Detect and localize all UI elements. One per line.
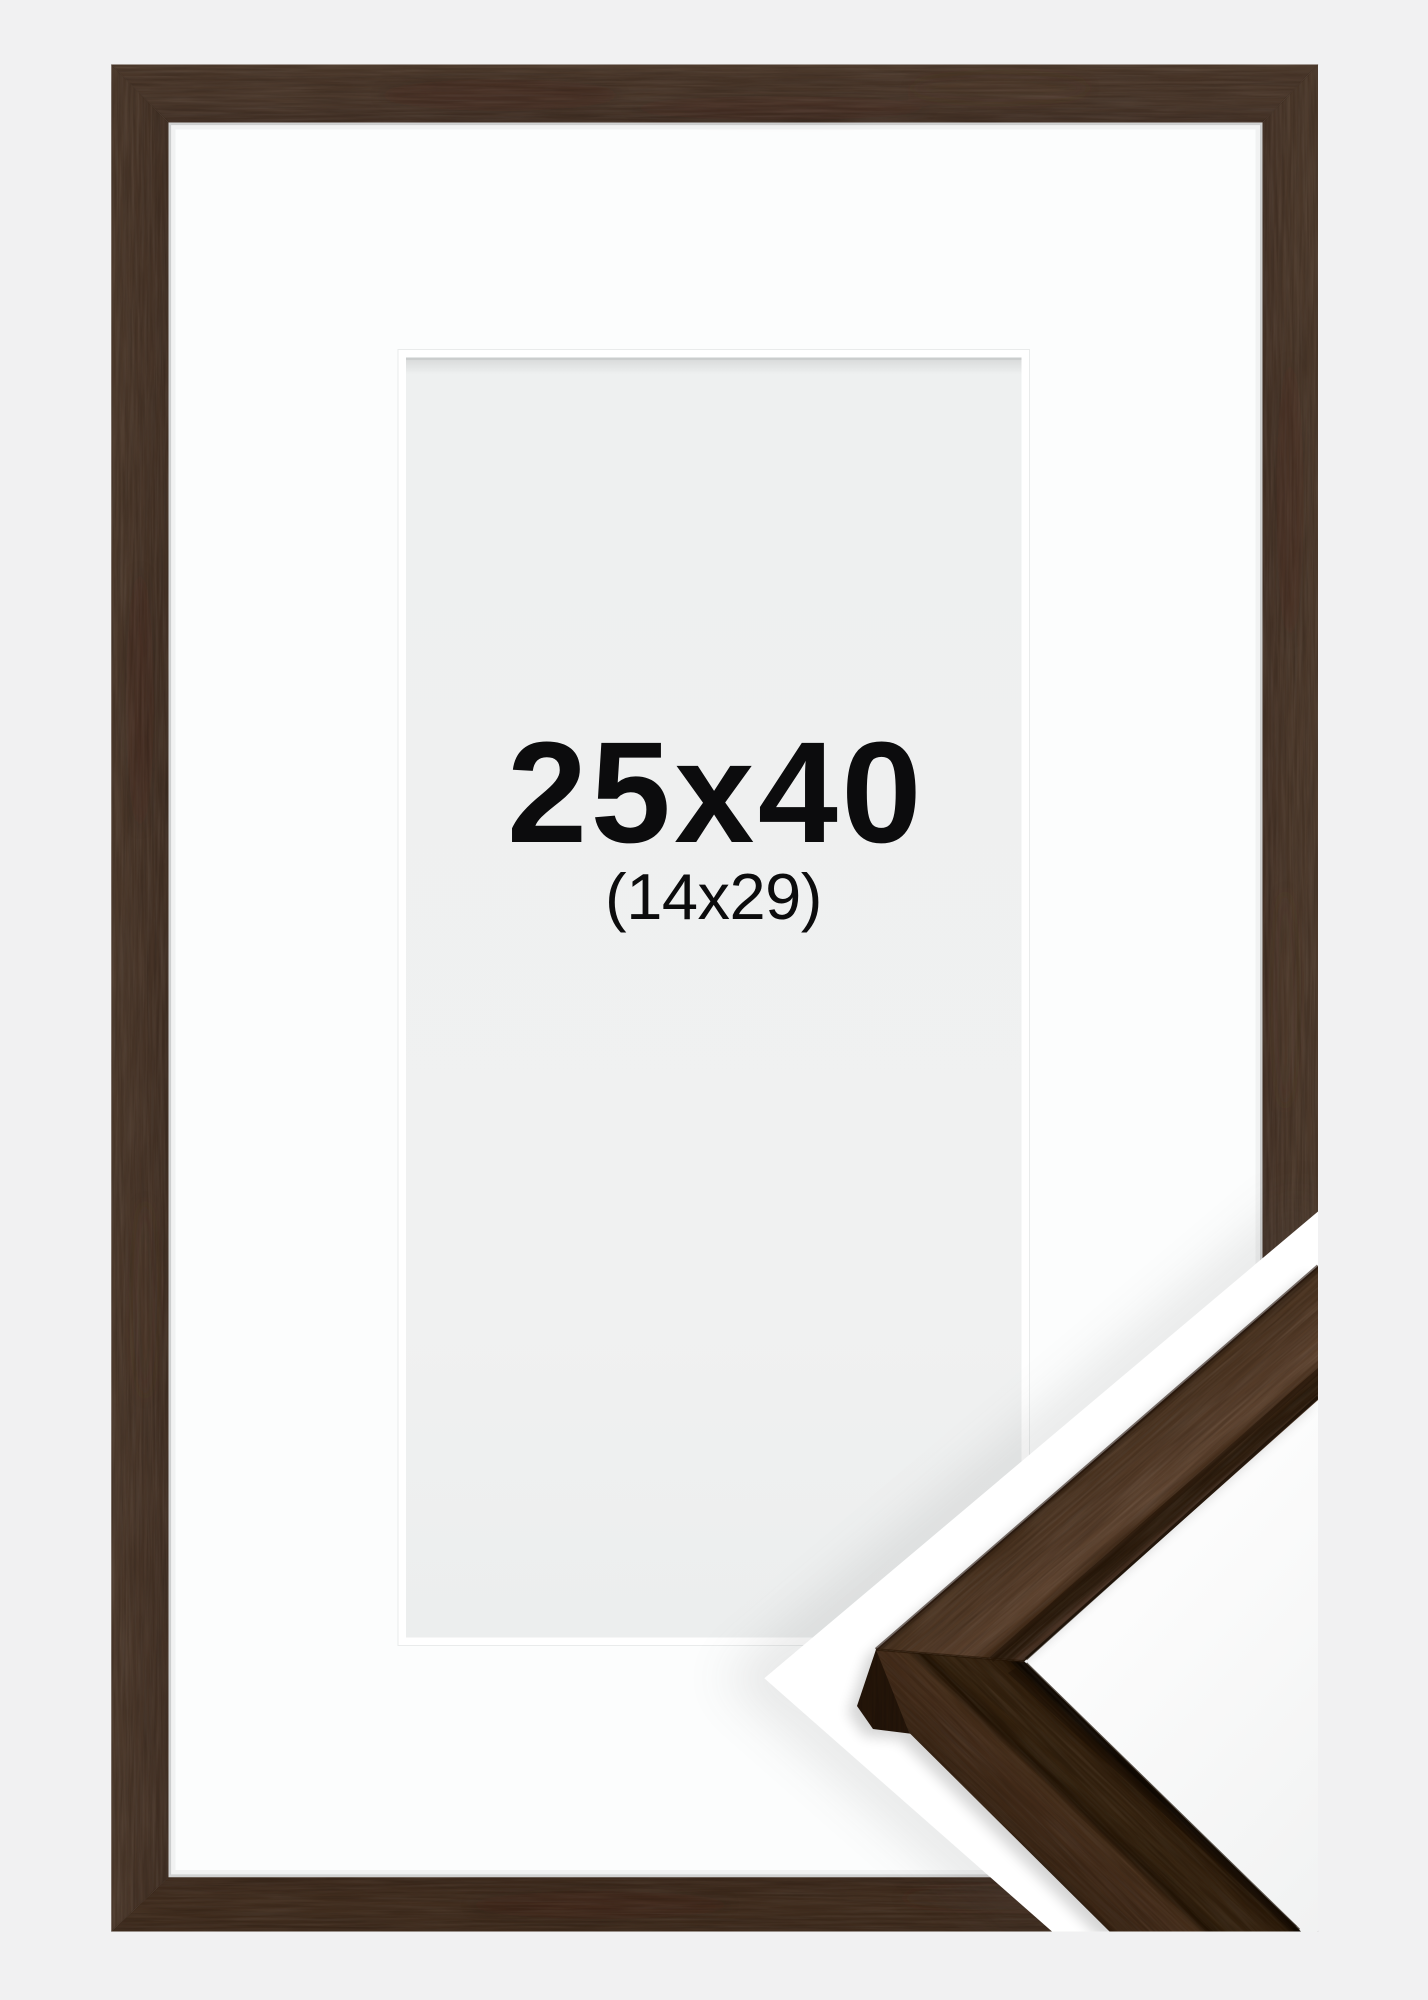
svg-text:25x40: 25x40 xyxy=(507,712,925,873)
svg-text:(14x29): (14x29) xyxy=(605,860,822,933)
